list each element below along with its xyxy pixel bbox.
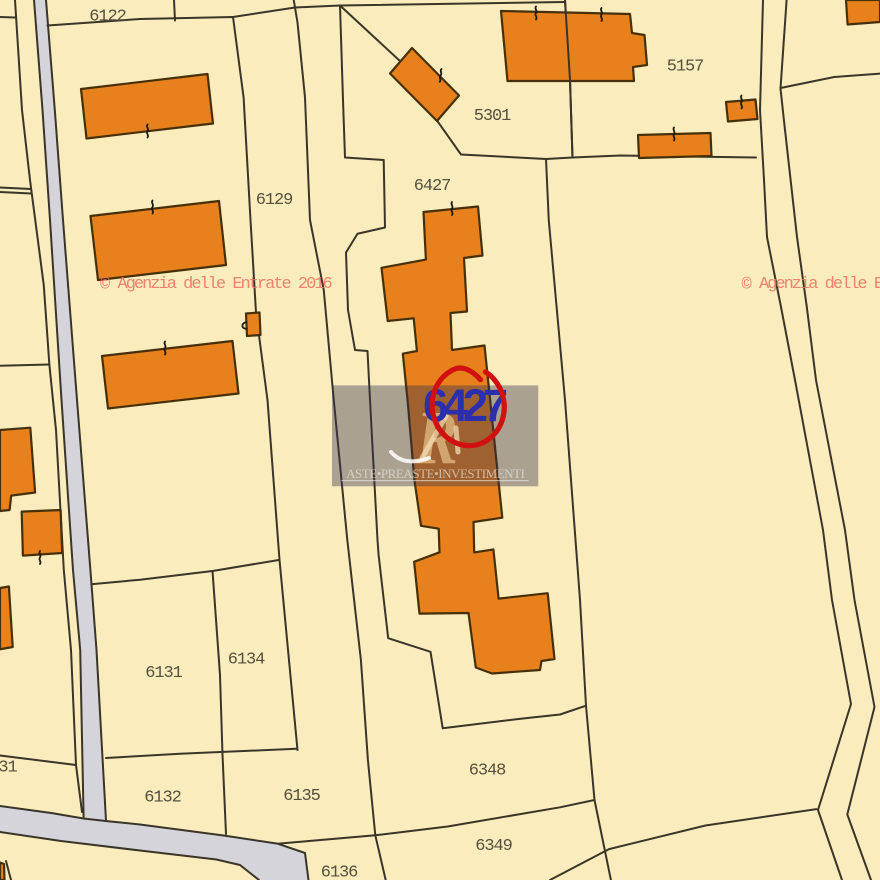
svg-text:ASTE•PREASTE•INVESTIMENTI: ASTE•PREASTE•INVESTIMENTI [346,466,525,481]
svg-text:5301: 5301 [474,107,511,126]
svg-text:5157: 5157 [667,58,703,77]
svg-text:6129: 6129 [256,191,293,210]
svg-text:6131: 6131 [145,664,182,683]
svg-text:6427: 6427 [414,177,450,196]
svg-text:6132: 6132 [144,789,180,808]
svg-text:31: 31 [0,759,17,778]
svg-text:6349: 6349 [475,837,512,856]
svg-text:6135: 6135 [283,787,320,806]
svg-text:6122: 6122 [89,8,125,27]
svg-text:6136: 6136 [321,864,358,880]
svg-text:Agenzia delle Entrate 2016: Agenzia delle Entrate 2016 [759,275,880,294]
svg-text:6134: 6134 [228,651,265,670]
svg-text:Agenzia delle Entrate 2016: Agenzia delle Entrate 2016 [118,275,333,294]
svg-text:6348: 6348 [469,762,506,781]
